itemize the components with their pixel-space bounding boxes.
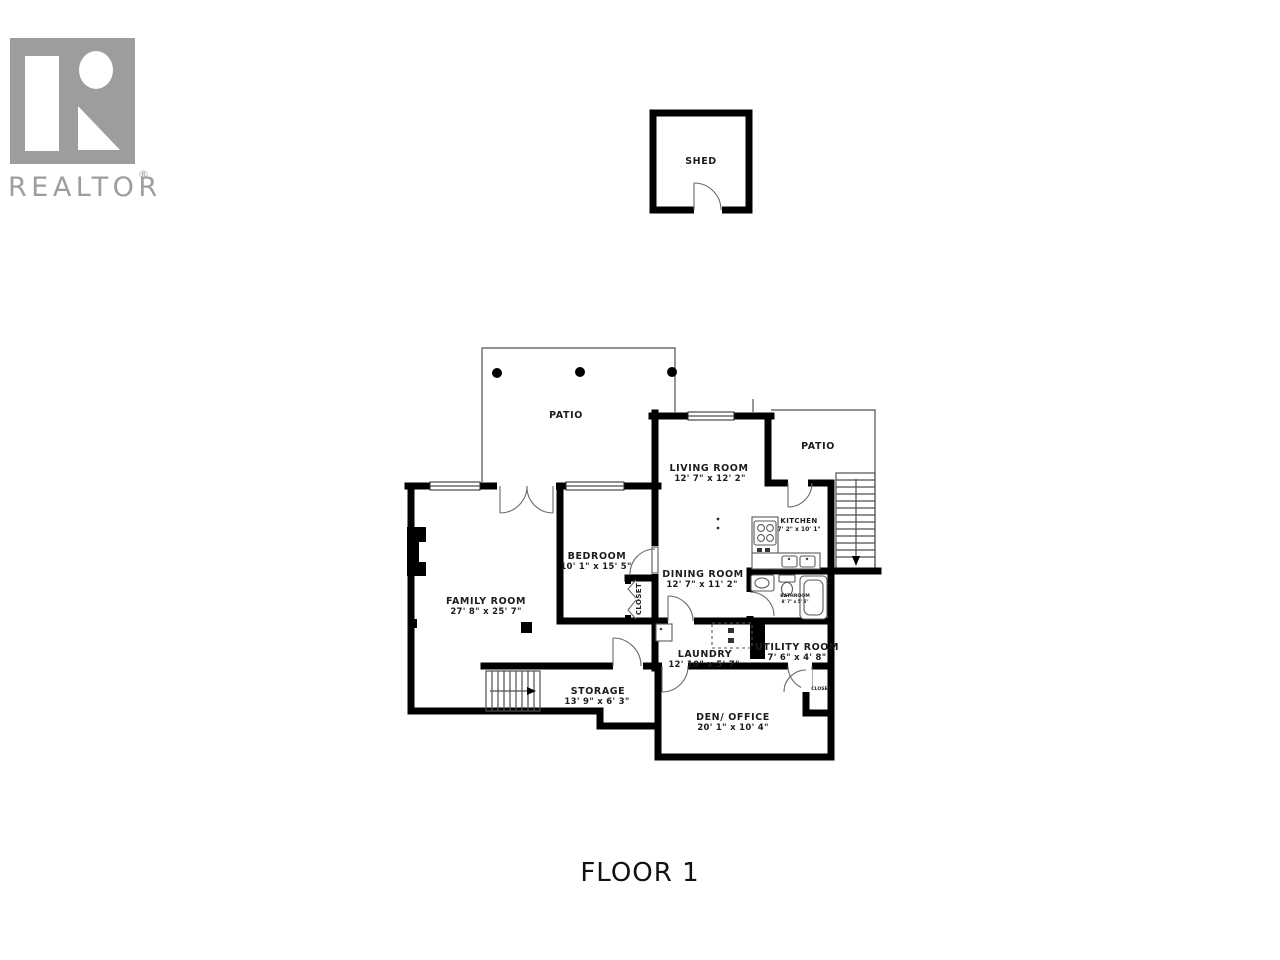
closet-jamb-top [625,578,631,584]
stove [754,521,776,545]
bedroom-door [630,546,661,574]
interior-stairs [486,671,540,711]
utility-sink [656,624,672,641]
utility-room-dims: 7' 6" x 4' 8" [768,653,827,663]
patio-top: PATIO [482,348,677,482]
dining-room-dims: 12' 7" x 11' 2" [666,580,737,590]
den-closet-label: CLOSET [811,686,831,692]
realtor-logo: REALTOR ® [8,38,162,203]
kitchen-dims: 7' 2" x 10' 1" [777,526,820,533]
shed: SHED [653,113,749,216]
dining-door [668,596,694,627]
utility-room-label: UTILITY ROOM [755,642,839,653]
exterior-stairs [836,473,875,571]
stairs-arrow [852,556,860,566]
kitchen-label: KITCHEN [780,517,817,525]
family-room-dims: 27' 8" x 25' 7" [450,607,521,617]
stairs-arrow [527,687,536,695]
french-doors-family [497,480,556,513]
closet-jamb-bottom [625,615,631,621]
living-room-label: LIVING ROOM [669,463,748,474]
patio-top-label: PATIO [549,410,583,421]
living-room-window [688,412,734,420]
floor-title: FLOOR 1 [580,858,699,888]
laundry-label: LAUNDRY [678,649,733,660]
bathroom-door [745,592,774,616]
family-room-window [430,482,480,490]
shed-label: SHED [685,156,717,167]
bedroom-label: BEDROOM [568,551,627,562]
wall-stub [411,619,417,628]
realtor-logo-r-stem [25,56,59,151]
bathroom-dims: 8' 7" x 5' 5" [781,599,808,604]
faucet [788,558,790,560]
stove-knob [765,548,770,552]
den-office-dims: 20' 1" x 10' 4" [697,723,768,733]
bedroom-closet-label: CLOSET [635,583,643,615]
storage-dims: 13' 9" x 6' 3" [564,697,629,707]
support-post [521,622,532,633]
floorplan-page: REALTOR ® SHED PATIO PATIO [0,0,1280,960]
patio-post-3 [667,367,677,377]
stove-burner [758,535,765,542]
stove-burner [767,535,774,542]
bedroom-dims: 10' 1" x 15' 5" [560,562,631,572]
patio-right-label: PATIO [801,441,835,452]
den-office-label: DEN/ OFFICE [696,712,770,723]
patio-post-2 [575,367,585,377]
bedroom-window [566,482,624,490]
stove-burner [767,525,774,532]
bathroom-sink [755,578,769,588]
toilet-tank [779,575,795,582]
faucet [660,628,663,631]
fireplace-firebox [419,542,428,562]
kitchen-sink-basin [782,556,797,567]
floorplan-canvas: REALTOR ® SHED PATIO PATIO [0,0,1280,960]
storage-door [613,638,643,672]
family-room-label: FAMILY ROOM [446,596,526,607]
stove-burner [758,525,765,532]
realtor-logo-r-counter [79,51,113,89]
living-room-dims: 12' 7" x 12' 2" [674,474,745,484]
laundry-dims: 12' 10" x 5' 7" [668,660,739,670]
light-symbol [717,518,720,521]
den-closet-door [784,670,812,692]
faucet [806,558,808,560]
laundry-fixtures [656,623,752,648]
appliance-mark [728,628,734,633]
stove-knob [757,548,762,552]
kitchen-sink-basin [800,556,815,567]
appliance-mark [728,638,734,643]
patio-post-1 [492,368,502,378]
registered-mark: ® [138,168,149,181]
light-symbol [717,527,720,530]
dining-room-label: DINING ROOM [662,569,743,580]
storage-label: STORAGE [571,686,626,697]
washer-dryer-dashed [712,623,752,648]
room-labels: LIVING ROOM 12' 7" x 12' 2" KITCHEN 7' 2… [446,463,839,733]
